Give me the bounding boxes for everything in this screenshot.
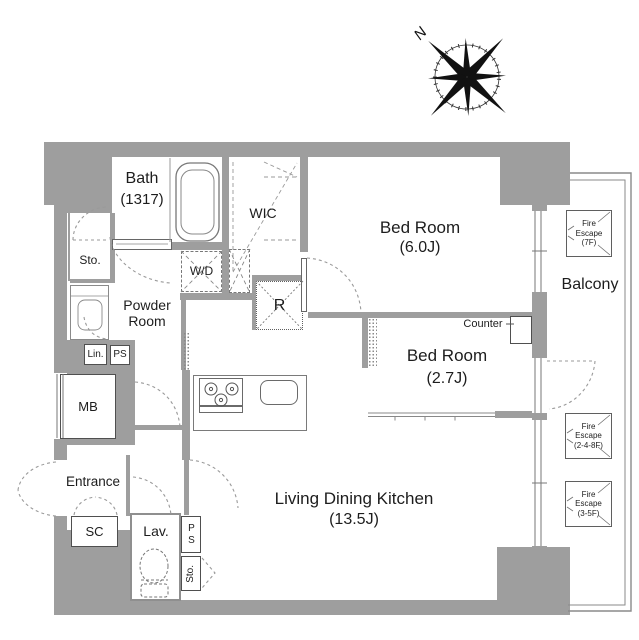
window-bedroom27-door (532, 358, 547, 413)
bedroom6-name: Bed Room (350, 218, 490, 238)
fire-escape-7f-line3: (7F) (582, 238, 597, 247)
pipe-space-upper-label: PS (113, 350, 126, 360)
wall (135, 425, 182, 430)
meter-box-label: MB (78, 400, 98, 413)
compass-north-label: N (411, 24, 431, 44)
fire-escape-248f-line2: Escape (575, 431, 602, 440)
storage-lower-box: Sto. (181, 556, 201, 591)
stove (199, 378, 243, 406)
fire-escape-248f-line1: Fire (582, 422, 596, 431)
fire-escape-7f-line1: Fire (582, 219, 596, 228)
counter-box (510, 316, 532, 344)
fire-escape-7f: Fire Escape (7F) (566, 210, 612, 257)
pipe-space-lower-label: PS (186, 523, 196, 547)
fire-escape-35f-line1: Fire (582, 490, 596, 499)
floor-plan: Lin. PS MB SC PS Sto. Fire Escape (0, 0, 639, 640)
fire-escape-35f-line2: Escape (575, 499, 602, 508)
storage-upper-room (68, 211, 112, 281)
fire-escape-248f: Fire Escape (2-4-8F) (565, 413, 612, 459)
bedroom27-size: (2.7J) (377, 370, 517, 388)
compass-rose: N (377, 0, 545, 155)
washer-dryer-label: W/D (181, 265, 222, 279)
shoe-closet-box: SC (71, 516, 118, 547)
wall (182, 370, 190, 460)
fire-escape-35f: Fire Escape (3-5F) (565, 481, 612, 527)
linen-label: Lin. (87, 350, 103, 360)
wic-label: WIC (238, 205, 288, 221)
bathtub (176, 163, 219, 241)
wall (54, 600, 497, 615)
fire-escape-decor (567, 212, 610, 525)
shoe-closet-label: SC (85, 525, 103, 538)
bath-sliding-door (112, 239, 172, 250)
wall (495, 411, 532, 418)
powder-room-line2: Room (112, 313, 182, 329)
ldk-name: Living Dining Kitchen (254, 489, 454, 509)
bath-size: (1317) (102, 191, 182, 208)
pipe-space-lower-box: PS (181, 516, 201, 553)
washer-dryer-box2 (229, 249, 250, 293)
pipe-space-upper-box: PS (110, 345, 130, 365)
entrance-label: Entrance (56, 474, 130, 490)
sink (260, 380, 298, 405)
wall (497, 547, 570, 615)
lavatory-label: Lav. (133, 523, 179, 539)
counter-label: Counter (460, 318, 506, 331)
window-bedroom6 (532, 211, 547, 292)
storage-lower-label: Sto. (186, 565, 196, 583)
wall (44, 157, 58, 205)
powder-room-line1: Powder (112, 297, 182, 313)
balcony-label: Balcony (550, 276, 630, 294)
wall (184, 460, 189, 515)
vanity-unit (70, 285, 109, 340)
hatch-strip-bedroom27 (368, 318, 377, 368)
fire-escape-35f-line3: (3-5F) (578, 509, 600, 518)
wall (500, 157, 570, 205)
wall (300, 157, 308, 252)
linen-box: Lin. (84, 344, 107, 365)
hatch-strip-kitchen (183, 332, 189, 370)
fire-escape-7f-line2: Escape (576, 229, 603, 238)
bath-name: Bath (102, 170, 182, 188)
ldk-size: (13.5J) (254, 511, 454, 529)
storage-upper-label: Sto. (68, 254, 112, 268)
wall (180, 293, 253, 300)
bedroom6-size: (6.0J) (350, 239, 490, 257)
wall (44, 142, 570, 157)
fire-escape-248f-line3: (2-4-8F) (574, 441, 603, 450)
stove-front (199, 406, 243, 413)
meter-box: MB (60, 374, 116, 439)
refrigerator-label: R (256, 297, 303, 315)
bedroom27-name: Bed Room (377, 346, 517, 366)
window-ldk (532, 420, 547, 546)
wall (222, 157, 229, 293)
